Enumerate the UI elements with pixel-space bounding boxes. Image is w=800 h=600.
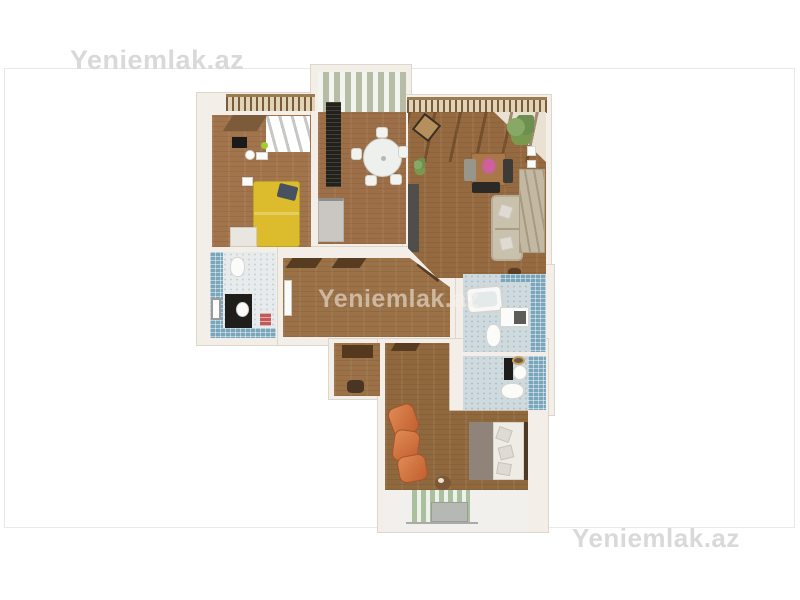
office-side-table <box>256 152 268 160</box>
wall-frame <box>527 146 536 156</box>
bed-pillow <box>277 183 299 201</box>
entry-mat <box>347 380 364 393</box>
listing-photo-page: Yeniemlak.az Yeniemlak.az Yeniemlak.az <box>0 0 800 600</box>
office-nightstand <box>242 177 253 186</box>
kitchen-counter-dark <box>326 102 341 187</box>
pouf <box>435 476 451 490</box>
toilet <box>501 383 524 399</box>
room-kitchen-dining <box>318 72 406 244</box>
sink-bowl <box>513 365 527 380</box>
toilet <box>486 324 501 347</box>
balcony-mat <box>431 502 468 522</box>
room-bathroom-left <box>210 252 276 338</box>
dining-chair <box>376 127 388 138</box>
wall-frame <box>527 160 536 168</box>
bed-fold <box>254 212 299 215</box>
office-desk-chair <box>245 150 255 160</box>
gold-mirror <box>512 356 525 365</box>
office-dresser <box>230 227 257 247</box>
toilet <box>230 257 245 277</box>
watermark-center: Yeniemlak.az <box>318 285 480 314</box>
watermark-bottom-right: Yeniemlak.az <box>572 523 740 554</box>
laundry-basket <box>260 313 271 326</box>
dining-chair <box>398 146 409 158</box>
tile-wall <box>530 274 546 352</box>
living-rug <box>519 169 545 253</box>
tile-wall <box>210 328 276 338</box>
plant-large <box>506 115 534 145</box>
watermark-top-left: Yeniemlak.az <box>70 45 244 76</box>
office-monitor <box>232 137 247 148</box>
tile-wall <box>210 252 223 338</box>
tile-wall <box>500 274 530 282</box>
open-door <box>284 280 292 316</box>
room-bathroom-bottom-right <box>463 356 546 410</box>
dining-round-table <box>363 138 402 177</box>
tile-wall <box>528 356 546 410</box>
room-bottom-balcony <box>385 490 528 532</box>
balcony-rail-line <box>406 522 478 524</box>
bed-headboard <box>469 422 493 480</box>
living-chair-dark <box>503 159 513 183</box>
sofa-pillow <box>497 203 513 219</box>
living-chair-gray <box>464 159 476 181</box>
closet-shelf <box>342 345 373 358</box>
office-yellow-bed <box>253 181 300 247</box>
dining-chair <box>390 174 402 185</box>
living-balcony-railing <box>407 97 547 113</box>
sink-bowl <box>236 302 249 317</box>
room-entry-closet <box>334 343 380 396</box>
dining-chair <box>365 175 377 186</box>
orange-sofa-segment <box>396 453 429 485</box>
dining-chair <box>351 148 362 160</box>
room-office <box>212 115 311 247</box>
living-chair-black <box>472 182 500 193</box>
room-living <box>408 112 546 278</box>
sofa-pillow <box>499 236 514 251</box>
bed-pillow <box>496 462 512 476</box>
door-threshold <box>391 343 421 351</box>
mirror <box>514 311 526 324</box>
office-desk <box>223 115 267 131</box>
office-skylight-windows <box>266 116 310 152</box>
living-wardrobe <box>408 184 419 252</box>
plant-small <box>414 158 425 175</box>
office-green-lamp <box>261 142 268 149</box>
office-balcony-railing <box>226 94 315 111</box>
kitchen-cabinet <box>318 198 344 242</box>
vanity <box>500 307 529 327</box>
vanity-counter <box>225 294 252 328</box>
door-threshold <box>285 258 322 268</box>
double-bed <box>469 422 533 480</box>
mirror <box>211 298 221 320</box>
pouf-top <box>438 478 444 483</box>
sofa-seam <box>495 228 521 230</box>
flower-bouquet <box>483 159 495 173</box>
door-threshold <box>331 258 366 268</box>
